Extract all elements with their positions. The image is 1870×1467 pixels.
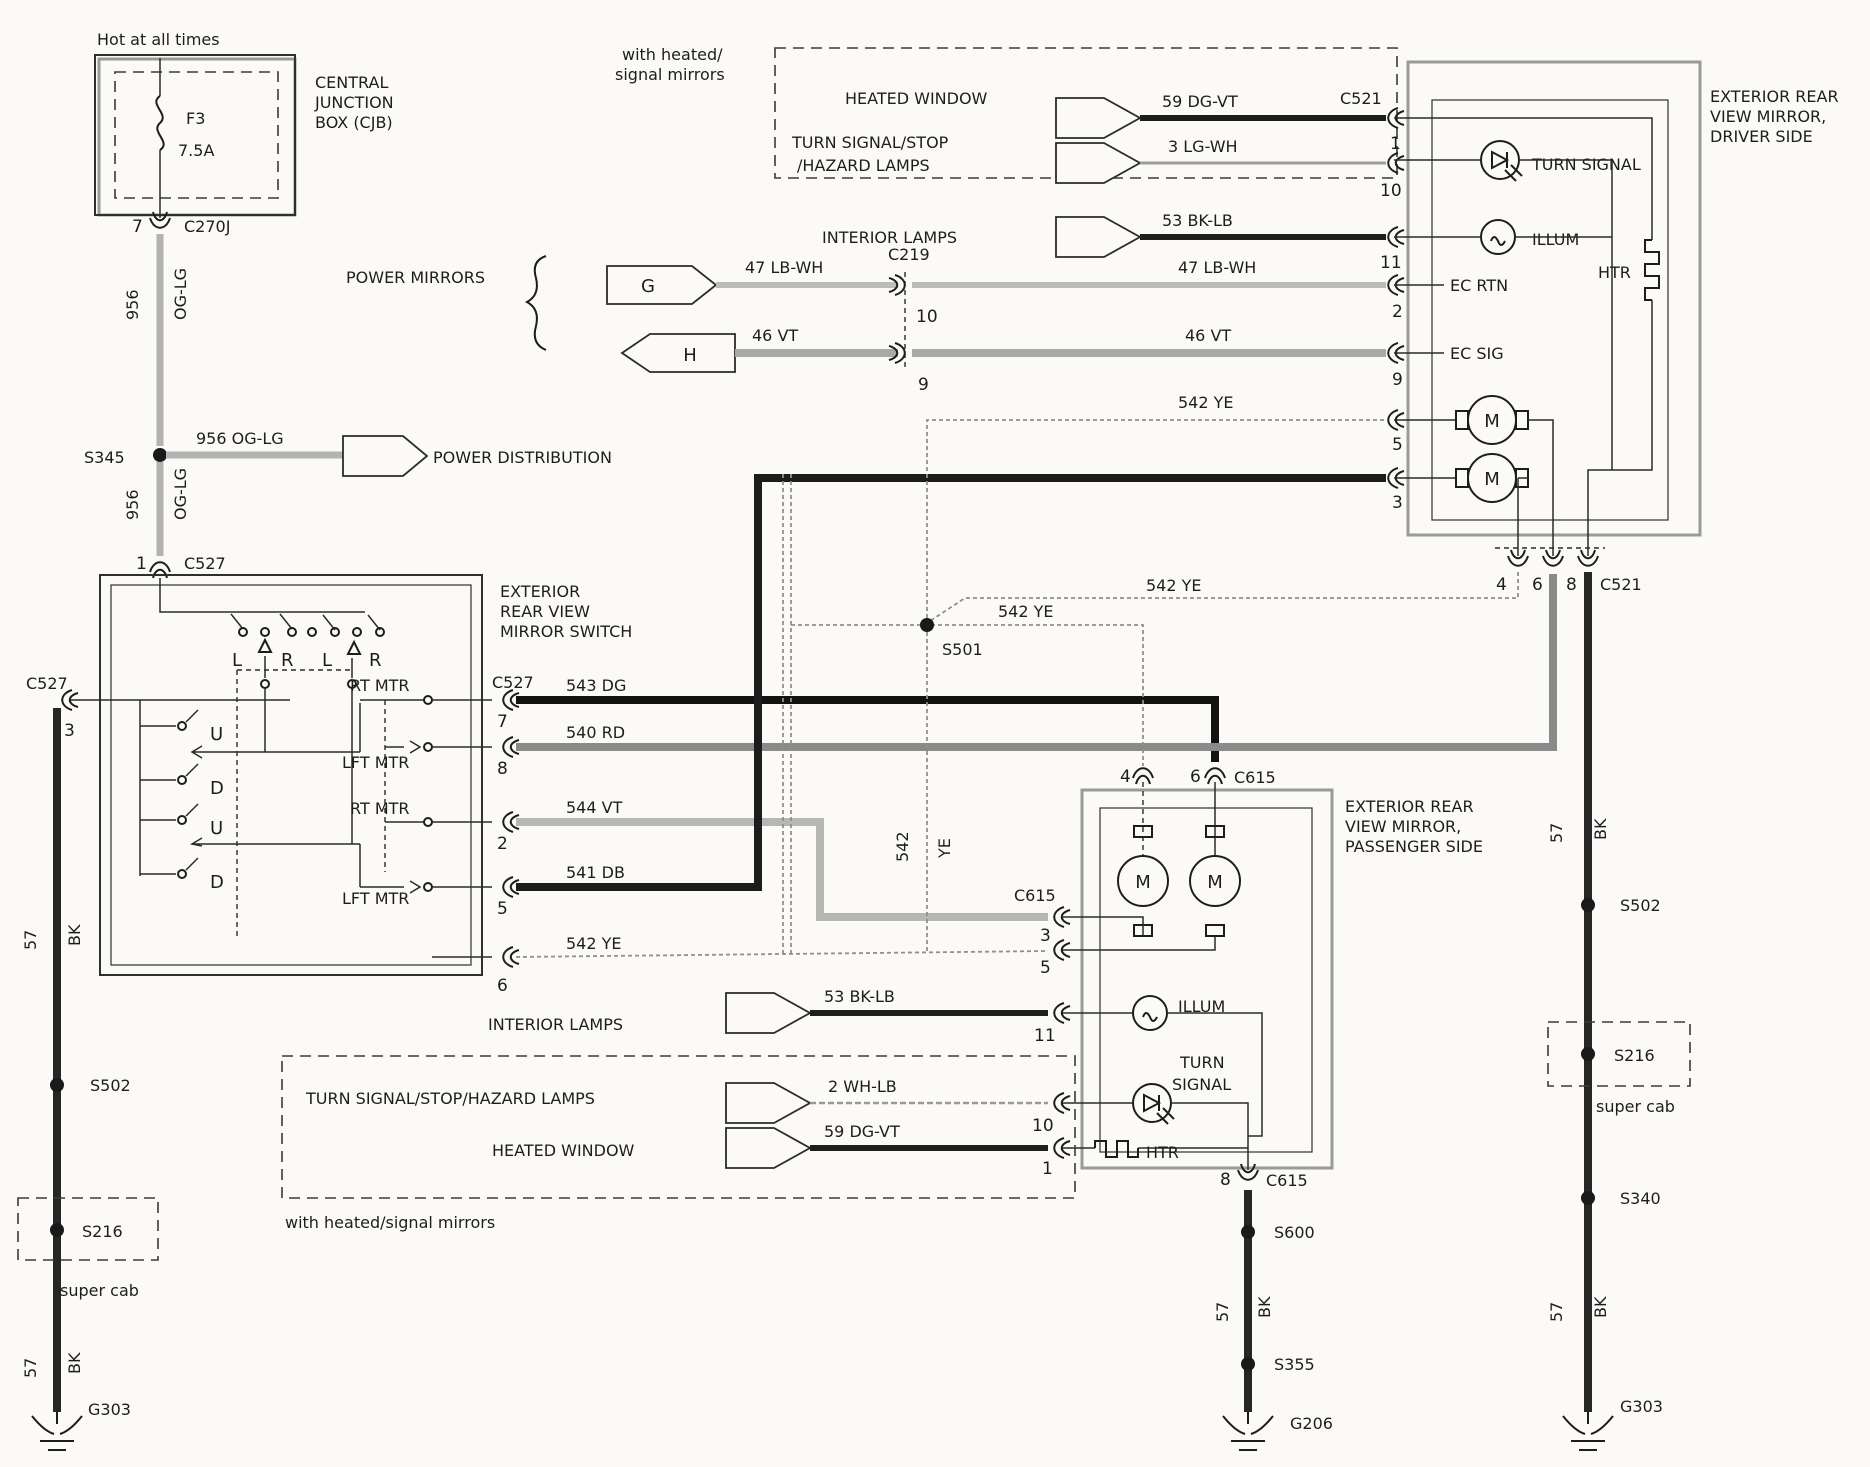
ground-icon (1223, 1412, 1273, 1450)
top-harness: with heated/ signal mirrors HEATED WINDO… (615, 45, 1404, 273)
wire-542-label-b: 542 YE (1146, 576, 1202, 595)
offpage-connector-icon (1056, 143, 1140, 183)
cjb-box (95, 55, 295, 215)
wire-541-label: 541 DB (566, 863, 625, 882)
switch-title-1: EXTERIOR (500, 582, 580, 601)
cjb-label-2: JUNCTION (314, 93, 394, 112)
c521-pin-2: 2 (1392, 302, 1403, 322)
wire-59-bottom-label: 59 DG-VT (824, 1122, 900, 1141)
ground-g206-label: G206 (1290, 1414, 1333, 1433)
connector-c219-label: C219 (888, 245, 930, 264)
wire-956-branch-label: 956 OG-LG (196, 429, 284, 448)
splice-s345 (153, 448, 167, 462)
wire-542-vert-label: 542 (893, 831, 912, 862)
driver-mirror: EXTERIOR REAR VIEW MIRROR, DRIVER SIDE T… (1178, 62, 1839, 595)
wire-57-right-label-b: 57 (1547, 1302, 1566, 1322)
note-with-heated-2: signal mirrors (615, 65, 725, 84)
power-mirrors-feed: POWER MIRRORS G 47 LB-WH C219 10 47 LB-W… (346, 245, 1386, 395)
connector-arrow-icon (1205, 768, 1225, 784)
wire-57-label-a: 57 (21, 930, 40, 950)
wire-bk-label-b: BK (65, 1352, 84, 1374)
switch-d2: D (210, 872, 224, 893)
turn-signal-led-icon (1144, 1095, 1159, 1111)
illum-filament-icon (1143, 1013, 1157, 1021)
cjb-label-1: CENTRAL (315, 73, 388, 92)
turn-signal-bottom-label: TURN SIGNAL/STOP/HAZARD LAMPS (305, 1089, 595, 1108)
wire-og-lg-label: OG-LG (171, 268, 190, 320)
connector-g-label: G (641, 276, 655, 297)
wire-544-label: 544 VT (566, 798, 623, 817)
motor-label: M (1484, 469, 1500, 490)
power-distribution-label: POWER DISTRIBUTION (433, 448, 612, 467)
fuse-icon (156, 96, 163, 150)
switch-title-3: MIRROR SWITCH (500, 622, 632, 641)
wire-bk-center-label: BK (1255, 1296, 1274, 1318)
fuse-name: F3 (186, 109, 205, 128)
wire-53-label: 53 BK-LB (1162, 211, 1233, 230)
detent-arrow-icon (259, 640, 271, 652)
c521-pin-5: 5 (1392, 435, 1403, 455)
splice-s355 (1241, 1357, 1255, 1371)
wire-bk-label-a: BK (65, 924, 84, 946)
switch-pin-8: 8 (497, 759, 508, 779)
wire-ye-vert-label: YE (935, 838, 954, 859)
htr-passenger-label: HTR (1146, 1143, 1179, 1162)
wire-57-right-label-a: 57 (1547, 823, 1566, 843)
power-distribution-connector-icon (343, 436, 427, 476)
wire-bk-right-label-b: BK (1591, 1296, 1610, 1318)
switch-u1: U (210, 724, 223, 745)
wire-3-label: 3 LG-WH (1168, 137, 1238, 156)
c615-pin-5: 5 (1040, 958, 1051, 978)
driver-mirror-title-2: VIEW MIRROR, (1710, 107, 1826, 126)
cjb-inner-dashed-box (115, 72, 278, 198)
splice-s502-left (50, 1078, 64, 1092)
htr-label: HTR (1598, 263, 1631, 282)
connector-c615-bottom-label: C615 (1266, 1171, 1308, 1190)
splice-s340 (1581, 1191, 1595, 1205)
switch-pin-2: 2 (497, 834, 508, 854)
c521-pin-1: 1 (1390, 134, 1401, 154)
heater-resistor-icon (1645, 240, 1659, 300)
c521-pin-8: 8 (1566, 575, 1577, 595)
switch-l1: L (232, 650, 242, 671)
wire-57-label-b: 57 (21, 1358, 40, 1378)
splice-s600 (1241, 1225, 1255, 1239)
splice-s502-right-label: S502 (1620, 896, 1661, 915)
connector-c521-top-label: C521 (1340, 89, 1382, 108)
splice-s216-right-label: S216 (1614, 1046, 1655, 1065)
offpage-connector-icon (726, 993, 810, 1033)
wire-2-label: 2 WH-LB (828, 1077, 897, 1096)
lft-mtr-label-1: LFT MTR (342, 753, 409, 772)
ground-g303-right-label: G303 (1620, 1397, 1663, 1416)
connector-h-icon (622, 334, 735, 372)
turn-signal-stop-label-2: /HAZARD LAMPS (797, 156, 930, 175)
rt-mtr-label-2: RT MTR (350, 799, 410, 818)
wire-540-rd (516, 574, 1553, 747)
ec-sig-label: EC SIG (1450, 344, 1504, 363)
central-junction-box: Hot at all times F3 7.5A CENTRAL JUNCTIO… (95, 30, 394, 237)
c615-pin-8: 8 (1220, 1170, 1231, 1190)
cjb-pin-7: 7 (132, 217, 143, 237)
turn-passenger-label-1: TURN (1179, 1053, 1225, 1072)
passenger-mirror-title-2: VIEW MIRROR, (1345, 817, 1461, 836)
connector-c527-top: C527 (184, 554, 226, 573)
splice-s345-label: S345 (84, 448, 125, 467)
center-ground-run: S600 57 BK S355 G206 (1213, 1190, 1333, 1450)
rt-mtr-label-1: RT MTR (350, 676, 410, 695)
passenger-mirror-title-1: EXTERIOR REAR (1345, 797, 1474, 816)
wire-542-switch-label: 542 YE (566, 934, 622, 953)
c521-pin-6: 6 (1532, 575, 1543, 595)
turn-signal-dashed-box (282, 1056, 1075, 1198)
splice-s355-label: S355 (1274, 1355, 1315, 1374)
illum-lamp-icon (1481, 220, 1515, 254)
motor-label: M (1135, 872, 1151, 893)
passenger-mirror-outer-box (1082, 790, 1332, 1168)
left-ground-run: C527 3 57 BK S502 S216 super cab 57 BK G… (18, 674, 158, 1450)
c527-pin-1: 1 (136, 554, 147, 574)
right-ground-run: 57 BK S502 S216 super cab S340 57 BK G30… (1547, 572, 1690, 1450)
connector-c527-left-label: C527 (26, 674, 68, 693)
switch-pin-6: 6 (497, 976, 508, 996)
wiring-diagram-page: Hot at all times F3 7.5A CENTRAL JUNCTIO… (0, 0, 1870, 1467)
connector-g-icon (607, 266, 716, 304)
connector-c615-left-label: C615 (1014, 886, 1056, 905)
turn-signal-stop-label-1: TURN SIGNAL/STOP (791, 133, 949, 152)
offpage-connector-icon (1056, 217, 1140, 257)
passenger-mirror-title-3: PASSENGER SIDE (1345, 837, 1483, 856)
turn-signal-led-icon (1492, 152, 1507, 168)
illum-lamp-icon (1133, 996, 1167, 1030)
super-cab-left-label: super cab (60, 1281, 139, 1300)
switch-l2: L (322, 650, 332, 671)
wire-956-label: 956 (123, 289, 142, 320)
power-mirrors-label: POWER MIRRORS (346, 268, 485, 287)
wire-46-left-label: 46 VT (752, 326, 798, 345)
motor-label: M (1207, 872, 1223, 893)
splice-s600-label: S600 (1274, 1223, 1315, 1242)
wire-543-label: 543 DG (566, 676, 626, 695)
wire-47-left-label: 47 LB-WH (745, 258, 823, 277)
splice-s502-right (1581, 898, 1595, 912)
wire-542-driver-label: 542 YE (1178, 393, 1234, 412)
c615-pin-4: 4 (1120, 767, 1131, 787)
splice-s216-left-label: S216 (82, 1222, 123, 1241)
cjb-outer-box (99, 59, 295, 215)
ec-rtn-label: EC RTN (1450, 276, 1508, 295)
c521-pin-11: 11 (1380, 253, 1402, 273)
with-heated-note-bottom: with heated/signal mirrors (285, 1213, 495, 1232)
c615-pin-6: 6 (1190, 767, 1201, 787)
ground-icon (1563, 1412, 1613, 1450)
hot-at-all-times-label: Hot at all times (97, 30, 220, 49)
motor-label: M (1484, 411, 1500, 432)
switch-inner-box (111, 585, 471, 965)
offpage-connector-icon (726, 1083, 810, 1123)
turn-signal-lamp-icon (1481, 141, 1519, 179)
wire-og-lg-label-2: OG-LG (171, 468, 190, 520)
c521-pin-10: 10 (1380, 181, 1402, 201)
splice-s340-label: S340 (1620, 1189, 1661, 1208)
c615-pin-1: 1 (1042, 1159, 1053, 1179)
connector-c615-top-label: C615 (1234, 768, 1276, 787)
mirror-switch: EXTERIOR REAR VIEW MIRROR SWITCH L R L R… (70, 575, 632, 996)
switch-title-2: REAR VIEW (500, 602, 590, 621)
wire-542-label-c: 542 YE (998, 602, 1054, 621)
connector-h-label: H (683, 345, 697, 366)
c219-pin-10: 10 (916, 307, 938, 327)
c527-pin-3: 3 (64, 721, 75, 741)
c521-pin-3: 3 (1392, 493, 1403, 513)
connector-c270j: C270J (184, 217, 230, 236)
wire-59-label: 59 DG-VT (1162, 92, 1238, 111)
switch-r2: R (369, 650, 382, 671)
c615-pin-11: 11 (1034, 1026, 1056, 1046)
power-mirror-wiring-diagram: Hot at all times F3 7.5A CENTRAL JUNCTIO… (0, 0, 1870, 1467)
interior-lamps-bottom-label: INTERIOR LAMPS (488, 1015, 623, 1034)
c615-pin-3: 3 (1040, 926, 1051, 946)
note-with-heated-1: with heated/ (622, 45, 723, 64)
connector-arrow-icon (1133, 768, 1153, 784)
fuse-rating: 7.5A (178, 141, 214, 160)
wire-53-bottom-label: 53 BK-LB (824, 987, 895, 1006)
switch-r1: R (281, 650, 294, 671)
c219-pin-9: 9 (918, 375, 929, 395)
super-cab-right-label: super cab (1596, 1097, 1675, 1116)
c615-pin-10: 10 (1032, 1116, 1054, 1136)
wire-bk-right-label-a: BK (1591, 818, 1610, 840)
ground-icon (32, 1412, 82, 1450)
heated-window-label: HEATED WINDOW (845, 89, 988, 108)
heated-window-bottom-label: HEATED WINDOW (492, 1141, 635, 1160)
illum-filament-icon (1491, 237, 1505, 245)
passenger-mirror: 4 6 C615 EXTERIOR REAR VIEW MIRROR, PASS… (1014, 767, 1483, 1190)
wire-47-right-label: 47 LB-WH (1178, 258, 1256, 277)
bottom-harness: INTERIOR LAMPS 53 BK-LB TURN SIGNAL/STOP… (282, 987, 1075, 1232)
c521-pin-4: 4 (1496, 575, 1507, 595)
switch-u2: U (210, 818, 223, 839)
turn-signal-lamp-icon (1133, 1084, 1171, 1122)
illum-label: ILLUM (1532, 230, 1579, 249)
switch-pin-7: 7 (497, 712, 508, 732)
connector-c527-switch-label: C527 (492, 673, 534, 692)
driver-mirror-outer-box (1408, 62, 1700, 535)
offpage-connector-icon (1056, 98, 1140, 138)
wire-956-label-2: 956 (123, 489, 142, 520)
switch-pin-5: 5 (497, 899, 508, 919)
driver-mirror-title-3: DRIVER SIDE (1710, 127, 1813, 146)
offpage-connector-icon (726, 1128, 810, 1168)
wire-57-center-label: 57 (1213, 1302, 1232, 1322)
cjb-label-3: BOX (CJB) (315, 113, 393, 132)
turn-passenger-label-2: SIGNAL (1172, 1075, 1231, 1094)
ground-g303-left-label: G303 (88, 1400, 131, 1419)
connector-c521-bottom-label: C521 (1600, 575, 1642, 594)
wire-46-right-label: 46 VT (1185, 326, 1231, 345)
turn-signal-label: TURN SIGNAL (1531, 155, 1641, 174)
lft-mtr-label-2: LFT MTR (342, 889, 409, 908)
splice-s216-left (50, 1223, 64, 1237)
splice-s502-left-label: S502 (90, 1076, 131, 1095)
heater-resistor-icon (1095, 1141, 1138, 1157)
connector-arrow-icon (1388, 153, 1404, 173)
c521-pin-9: 9 (1392, 370, 1403, 390)
detent-arrow-icon (348, 642, 360, 654)
driver-mirror-title-1: EXTERIOR REAR (1710, 87, 1839, 106)
switch-d1: D (210, 778, 224, 799)
splice-s216-right (1581, 1047, 1595, 1061)
splice-s501 (920, 618, 934, 632)
brace-icon (527, 256, 546, 350)
wire-540-label: 540 RD (566, 723, 625, 742)
splice-s501-label: S501 (942, 640, 983, 659)
